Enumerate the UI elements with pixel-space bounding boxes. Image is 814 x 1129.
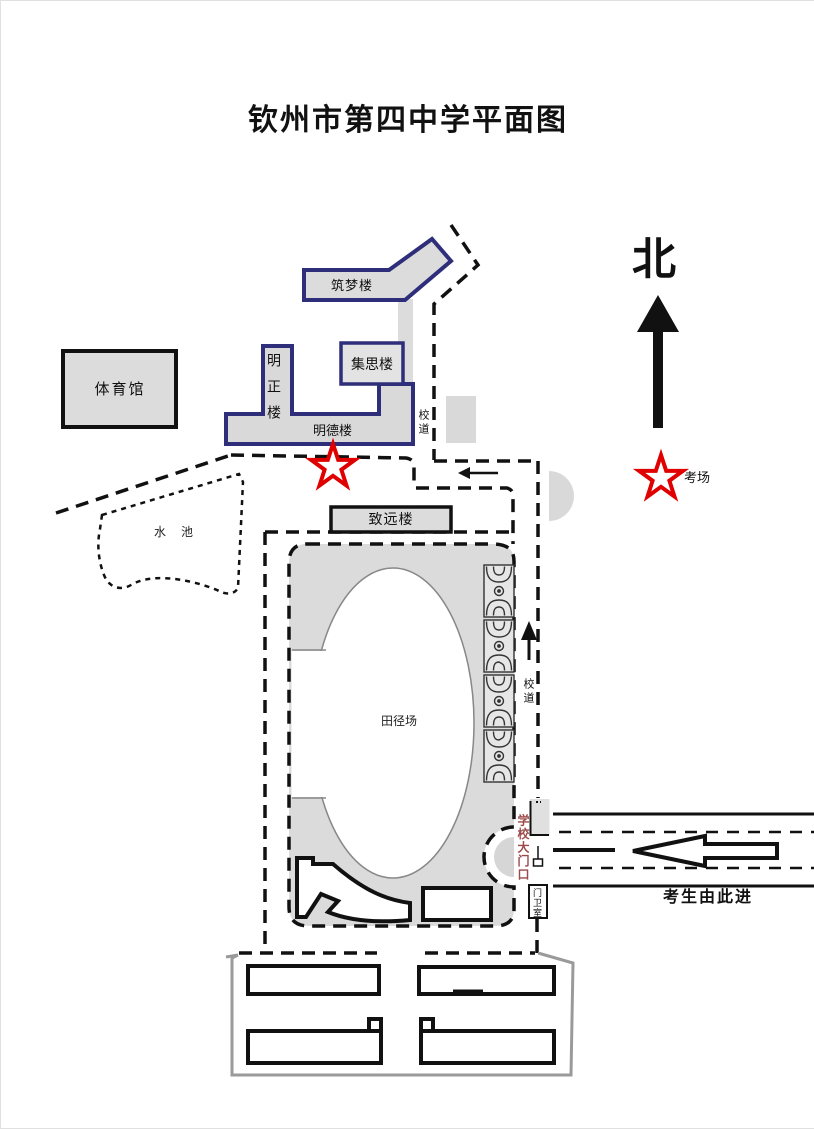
exam-star-icon-legend (639, 455, 683, 497)
zhumeng-label: 筑梦楼 (331, 279, 373, 292)
small-gray-building (446, 396, 476, 443)
zhiyuan-label: 致远楼 (369, 512, 414, 526)
pond-label: 水 池 (154, 526, 199, 538)
boundary-west-diagonal (56, 455, 231, 513)
legend-exam-label: 考场 (684, 471, 710, 484)
gate-barrier-base (534, 859, 543, 866)
north-arrow-icon (637, 295, 679, 428)
mingde-label: 明德楼 (313, 424, 352, 437)
jisi-label: 集思楼 (351, 357, 393, 371)
exam-stars (311, 444, 683, 497)
gate-structure (530, 799, 550, 836)
basketball-court-icon (484, 620, 514, 672)
mingzheng-label: 明正楼 (267, 353, 281, 431)
field-label: 田径场 (381, 715, 417, 727)
south-building-1 (248, 966, 379, 994)
map-title: 钦州市第四中学平面图 (248, 106, 568, 136)
south-building-4 (421, 1031, 554, 1063)
east-gate-halfcircle (549, 471, 574, 521)
field-south-building (423, 888, 491, 920)
campus-map: 钦州市第四中学平面图 北 考场 体育馆 筑梦楼 明正楼 集思楼 明德楼 校道 水… (0, 0, 814, 1129)
road (553, 814, 814, 886)
gym-label: 体育馆 (94, 382, 145, 397)
south-building-2 (419, 967, 554, 994)
entry-arrow-icon (633, 836, 777, 866)
main-gate-label: 学校大门口 (517, 814, 529, 882)
south-building-3 (248, 1031, 381, 1063)
zhumeng-building (304, 239, 451, 300)
field-west-strip (292, 651, 328, 797)
basketball-court-icon (484, 730, 514, 782)
basketball-court-icon (484, 675, 514, 727)
map-canvas (1, 1, 814, 1128)
exam-star-icon-mingde (311, 444, 355, 486)
compound-wall-stub (226, 955, 238, 957)
north-label: 北 (632, 238, 676, 282)
basketball-court-icon (484, 565, 514, 617)
campus-road-east-label: 校道 (522, 678, 533, 706)
campus-road-upper-label: 校道 (417, 409, 428, 437)
gate-plaza-halfcircle (494, 837, 514, 877)
guard-room-label: 门卫室 (532, 888, 541, 918)
entry-note-label: 考生由此进 (663, 890, 753, 906)
south-compound (226, 953, 573, 1075)
